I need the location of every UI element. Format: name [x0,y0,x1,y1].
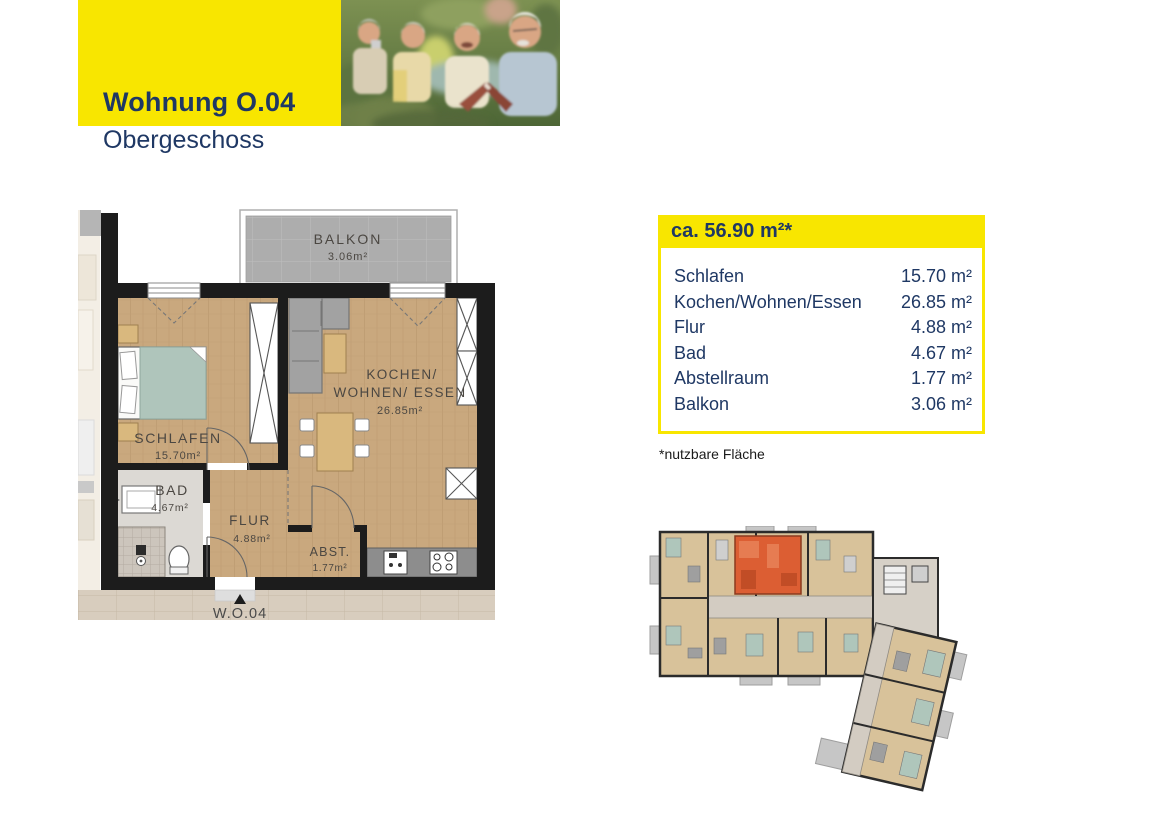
svg-text:1.77m²: 1.77m² [313,563,348,574]
footnote: *nutzbare Fläche [659,446,765,462]
coffee-table [324,334,346,373]
room-area: 26.85 m² [901,290,972,316]
overview-left-wing [650,526,873,685]
bed [118,347,206,419]
page-subtitle: Obergeschoss [103,126,264,155]
room-area: 4.67 m² [911,341,972,367]
svg-text:FLUR: FLUR [229,513,271,528]
svg-text:BALKON: BALKON [314,231,383,247]
svg-text:ABST.: ABST. [310,545,351,559]
room-label: Abstellraum [674,366,769,392]
room-area: 3.06 m² [911,392,972,418]
svg-text:KOCHEN/: KOCHEN/ [366,367,437,382]
seniors-photo-illustration [341,0,560,126]
sink [389,553,397,558]
svg-text:26.85m²: 26.85m² [377,405,423,417]
room-label: Schlafen [674,264,744,290]
table-row: Abstellraum 1.77 m² [674,366,972,392]
room-label: Kochen/Wohnen/Essen [674,290,862,316]
highlighted-unit [735,536,801,594]
overview-drawing [648,526,1000,794]
stove [430,551,457,574]
room-area: 4.88 m² [911,315,972,341]
header-photo [341,0,560,126]
kitchen-counter [367,548,477,577]
svg-text:WOHNEN/ ESSEN: WOHNEN/ ESSEN [334,385,467,400]
building-overview-plan [648,526,1000,794]
svg-text:BAD: BAD [155,482,189,498]
table-row: Flur 4.88 m² [674,315,972,341]
floorplan-drawing: BALKON 3.06m² [78,195,495,625]
nightstand-top [118,325,138,343]
area-info-box: ca. 56.90 m²* Schlafen 15.70 m² Kochen/W… [658,215,985,434]
room-area: 1.77 m² [911,366,972,392]
room-label: Bad [674,341,706,367]
room-balkon: BALKON 3.06m² [240,210,457,287]
svg-text:SCHLAFEN: SCHLAFEN [134,430,221,446]
area-table: Schlafen 15.70 m² Kochen/Wohnen/Essen 26… [658,248,985,434]
page-title: Wohnung O.04 [103,87,295,118]
svg-text:4.88m²: 4.88m² [233,533,270,545]
corridor [78,590,495,620]
svg-text:4.67m²: 4.67m² [151,502,188,514]
table-row: Balkon 3.06 m² [674,392,972,418]
svg-text:15.70m²: 15.70m² [155,450,201,462]
room-label: Balkon [674,392,729,418]
title-box: Wohnung O.04 [78,0,341,126]
apartment-floorplan: BALKON 3.06m² [78,195,495,625]
svg-text:W.O.04: W.O.04 [213,606,267,622]
flyer-page: Wohnung O.04 Obergeschoss [0,0,1169,823]
room-area: 15.70 m² [901,264,972,290]
total-area-header: ca. 56.90 m²* [658,215,985,248]
svg-text:3.06m²: 3.06m² [328,251,368,263]
wardrobe-bedroom [250,303,278,443]
room-label: Flur [674,315,705,341]
adjacent-unit-strip [78,210,101,620]
table-row: Bad 4.67 m² [674,341,972,367]
table-row: Kochen/Wohnen/Essen 26.85 m² [674,290,972,316]
table-row: Schlafen 15.70 m² [674,264,972,290]
